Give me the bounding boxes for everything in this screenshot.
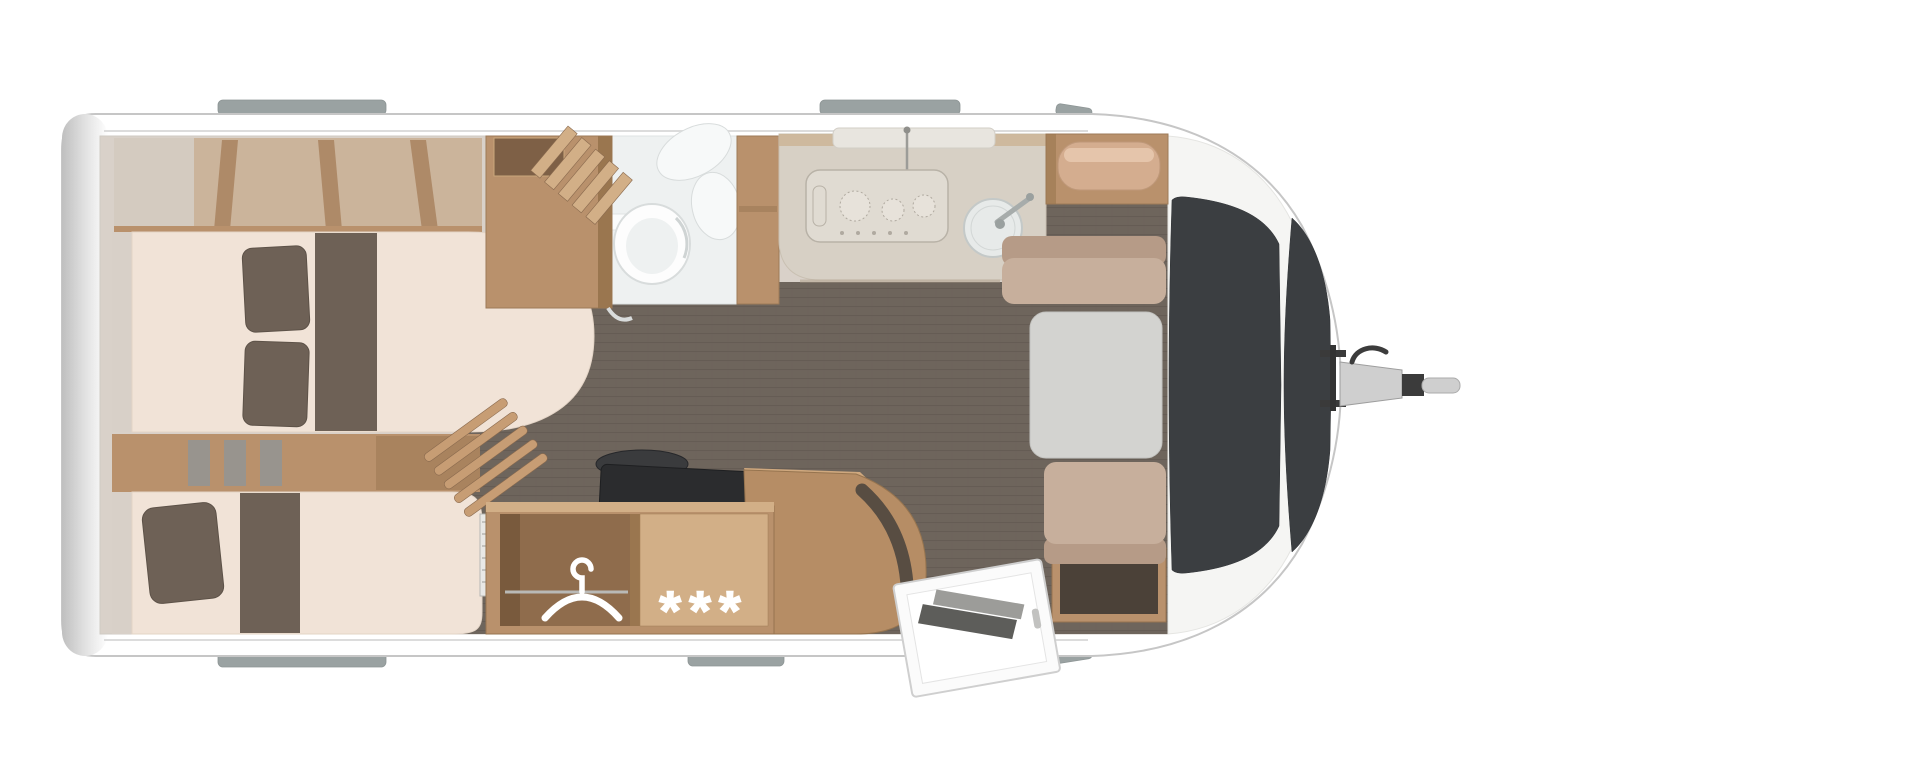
bench-front-storage xyxy=(1060,560,1158,614)
overhead-bolster-highlight xyxy=(1064,148,1154,162)
toilet-bowl xyxy=(626,218,678,274)
wardrobe-divider xyxy=(630,514,640,626)
step-slot-2 xyxy=(224,440,246,486)
bench-rear-seat xyxy=(1002,258,1166,304)
freezer-stars: *** xyxy=(659,579,748,642)
step-slot-1 xyxy=(188,440,210,486)
kitchen-wall-ledge xyxy=(833,128,995,148)
bed-bottom-runner xyxy=(240,493,300,633)
bench-front-seat xyxy=(1044,462,1166,544)
hitch-neck xyxy=(1402,374,1424,396)
caravan-floorplan-image: *** xyxy=(0,0,1920,768)
hitch-coupling xyxy=(1340,362,1402,406)
burner-2 xyxy=(882,199,904,221)
hitch-ball-socket xyxy=(1422,378,1460,393)
pillow-bottom xyxy=(141,501,225,604)
roof-rail-top-left xyxy=(218,100,386,115)
console-right-shade xyxy=(376,436,480,490)
bed-top-runner xyxy=(315,233,377,431)
dinette-table xyxy=(1030,312,1162,458)
pillow-top-2 xyxy=(243,341,310,427)
pillow-top-1 xyxy=(242,245,310,332)
burner-3 xyxy=(913,195,935,217)
bathroom xyxy=(486,112,779,320)
bathroom-right-wall xyxy=(737,136,779,304)
overhead-shelf-divider xyxy=(1046,134,1056,204)
faucet-head xyxy=(1026,193,1034,201)
dinette-overhead-shelf xyxy=(1046,134,1168,204)
floorplan-svg: *** xyxy=(0,0,1920,768)
entry-door xyxy=(893,559,1061,697)
step-slot-3 xyxy=(260,440,282,486)
faucet-base xyxy=(995,219,1005,229)
door-panel xyxy=(893,559,1061,697)
wardrobe-inner-shadow xyxy=(500,514,520,626)
roof-rail-top-right xyxy=(820,100,960,115)
tap-column-knob xyxy=(904,127,911,134)
drawbar-cross xyxy=(1330,345,1336,411)
bathroom-wall-shelf xyxy=(739,206,777,212)
wardrobe-top-edge xyxy=(486,502,774,512)
front-window-large xyxy=(1169,197,1281,573)
locker-left-cap xyxy=(114,138,194,226)
front-windows xyxy=(1169,197,1331,573)
burner-1 xyxy=(840,191,870,221)
